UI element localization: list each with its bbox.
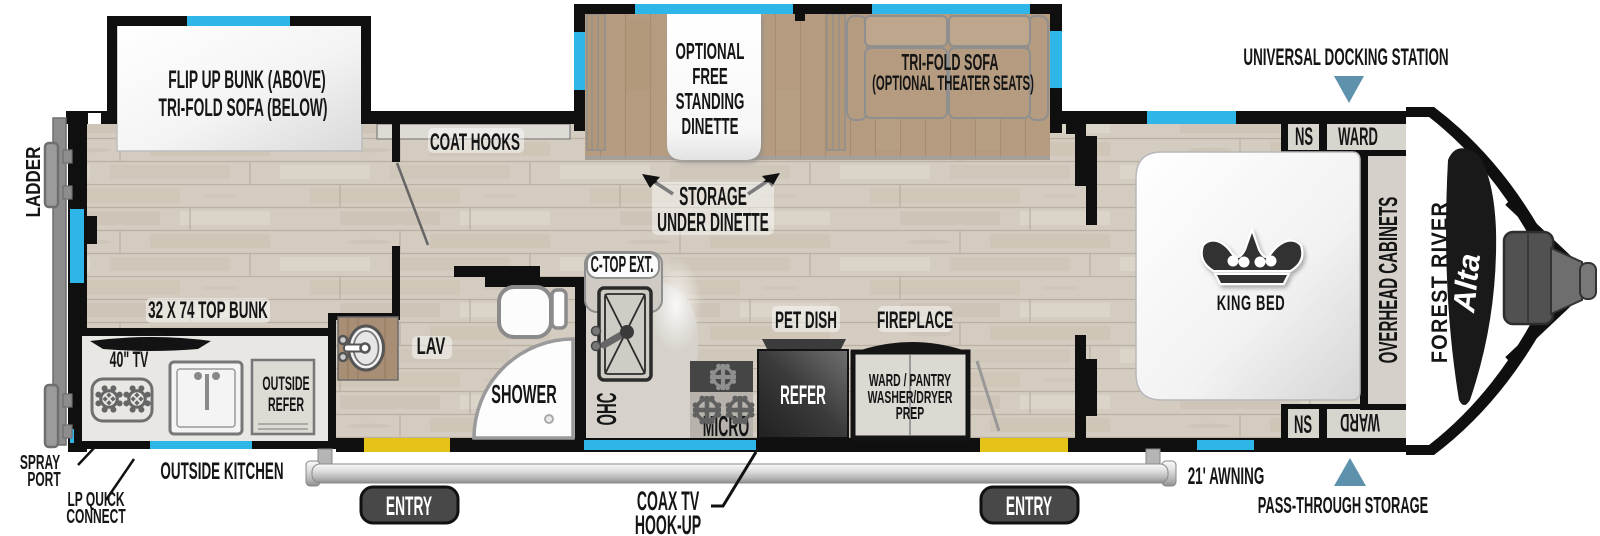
svg-text:32 X 74 TOP BUNK: 32 X 74 TOP BUNK (148, 297, 268, 324)
svg-text:PASS-THROUGH STORAGE: PASS-THROUGH STORAGE (1258, 492, 1428, 518)
svg-text:UNIVERSAL DOCKING STATION: UNIVERSAL DOCKING STATION (1243, 44, 1448, 71)
svg-text:PET DISH: PET DISH (775, 307, 837, 334)
svg-text:WARD: WARD (1338, 124, 1378, 152)
svg-text:REFER: REFER (268, 395, 304, 416)
svg-text:PREP: PREP (896, 404, 925, 424)
svg-text:Alta: Alta (1446, 252, 1487, 315)
svg-text:STORAGE: STORAGE (679, 183, 747, 212)
svg-text:DINETTE: DINETTE (681, 113, 738, 139)
svg-text:LADDER: LADDER (22, 146, 45, 217)
svg-text:KING BED: KING BED (1217, 291, 1286, 315)
svg-text:C-TOP EXT.: C-TOP EXT. (591, 252, 654, 277)
svg-text:TRI-FOLD SOFA (BELOW): TRI-FOLD SOFA (BELOW) (159, 95, 328, 122)
svg-text:40" TV: 40" TV (110, 347, 149, 372)
svg-text:ENTRY: ENTRY (1006, 491, 1052, 521)
svg-text:OVERHEAD CABINETS: OVERHEAD CABINETS (1374, 197, 1403, 364)
svg-text:OPTIONAL: OPTIONAL (676, 38, 745, 64)
svg-text:CONNECT: CONNECT (66, 506, 125, 528)
svg-text:OUTSIDE KITCHEN: OUTSIDE KITCHEN (160, 458, 283, 485)
svg-text:STANDING: STANDING (676, 88, 745, 114)
svg-text:NS: NS (1295, 124, 1313, 152)
svg-text:LAV: LAV (417, 334, 446, 360)
svg-text:NS: NS (1294, 412, 1312, 440)
svg-text:FREE: FREE (692, 63, 728, 89)
svg-text:ENTRY: ENTRY (386, 491, 432, 521)
svg-text:21' AWNING: 21' AWNING (1188, 463, 1265, 490)
svg-text:SHOWER: SHOWER (491, 381, 556, 409)
svg-text:(OPTIONAL THEATER SEATS): (OPTIONAL THEATER SEATS) (872, 71, 1034, 95)
svg-text:PORT: PORT (27, 469, 60, 491)
svg-text:OHC: OHC (591, 393, 622, 426)
svg-text:FLIP UP BUNK (ABOVE): FLIP UP BUNK (ABOVE) (168, 67, 325, 94)
svg-text:HOOK-UP: HOOK-UP (635, 510, 701, 536)
svg-text:FIREPLACE: FIREPLACE (877, 307, 953, 334)
svg-text:COAT HOOKS: COAT HOOKS (430, 129, 520, 156)
svg-text:UNDER DINETTE: UNDER DINETTE (657, 209, 769, 238)
svg-text:WARD: WARD (1340, 408, 1380, 436)
svg-text:REFER: REFER (780, 380, 826, 410)
svg-text:OUTSIDE: OUTSIDE (262, 374, 309, 395)
